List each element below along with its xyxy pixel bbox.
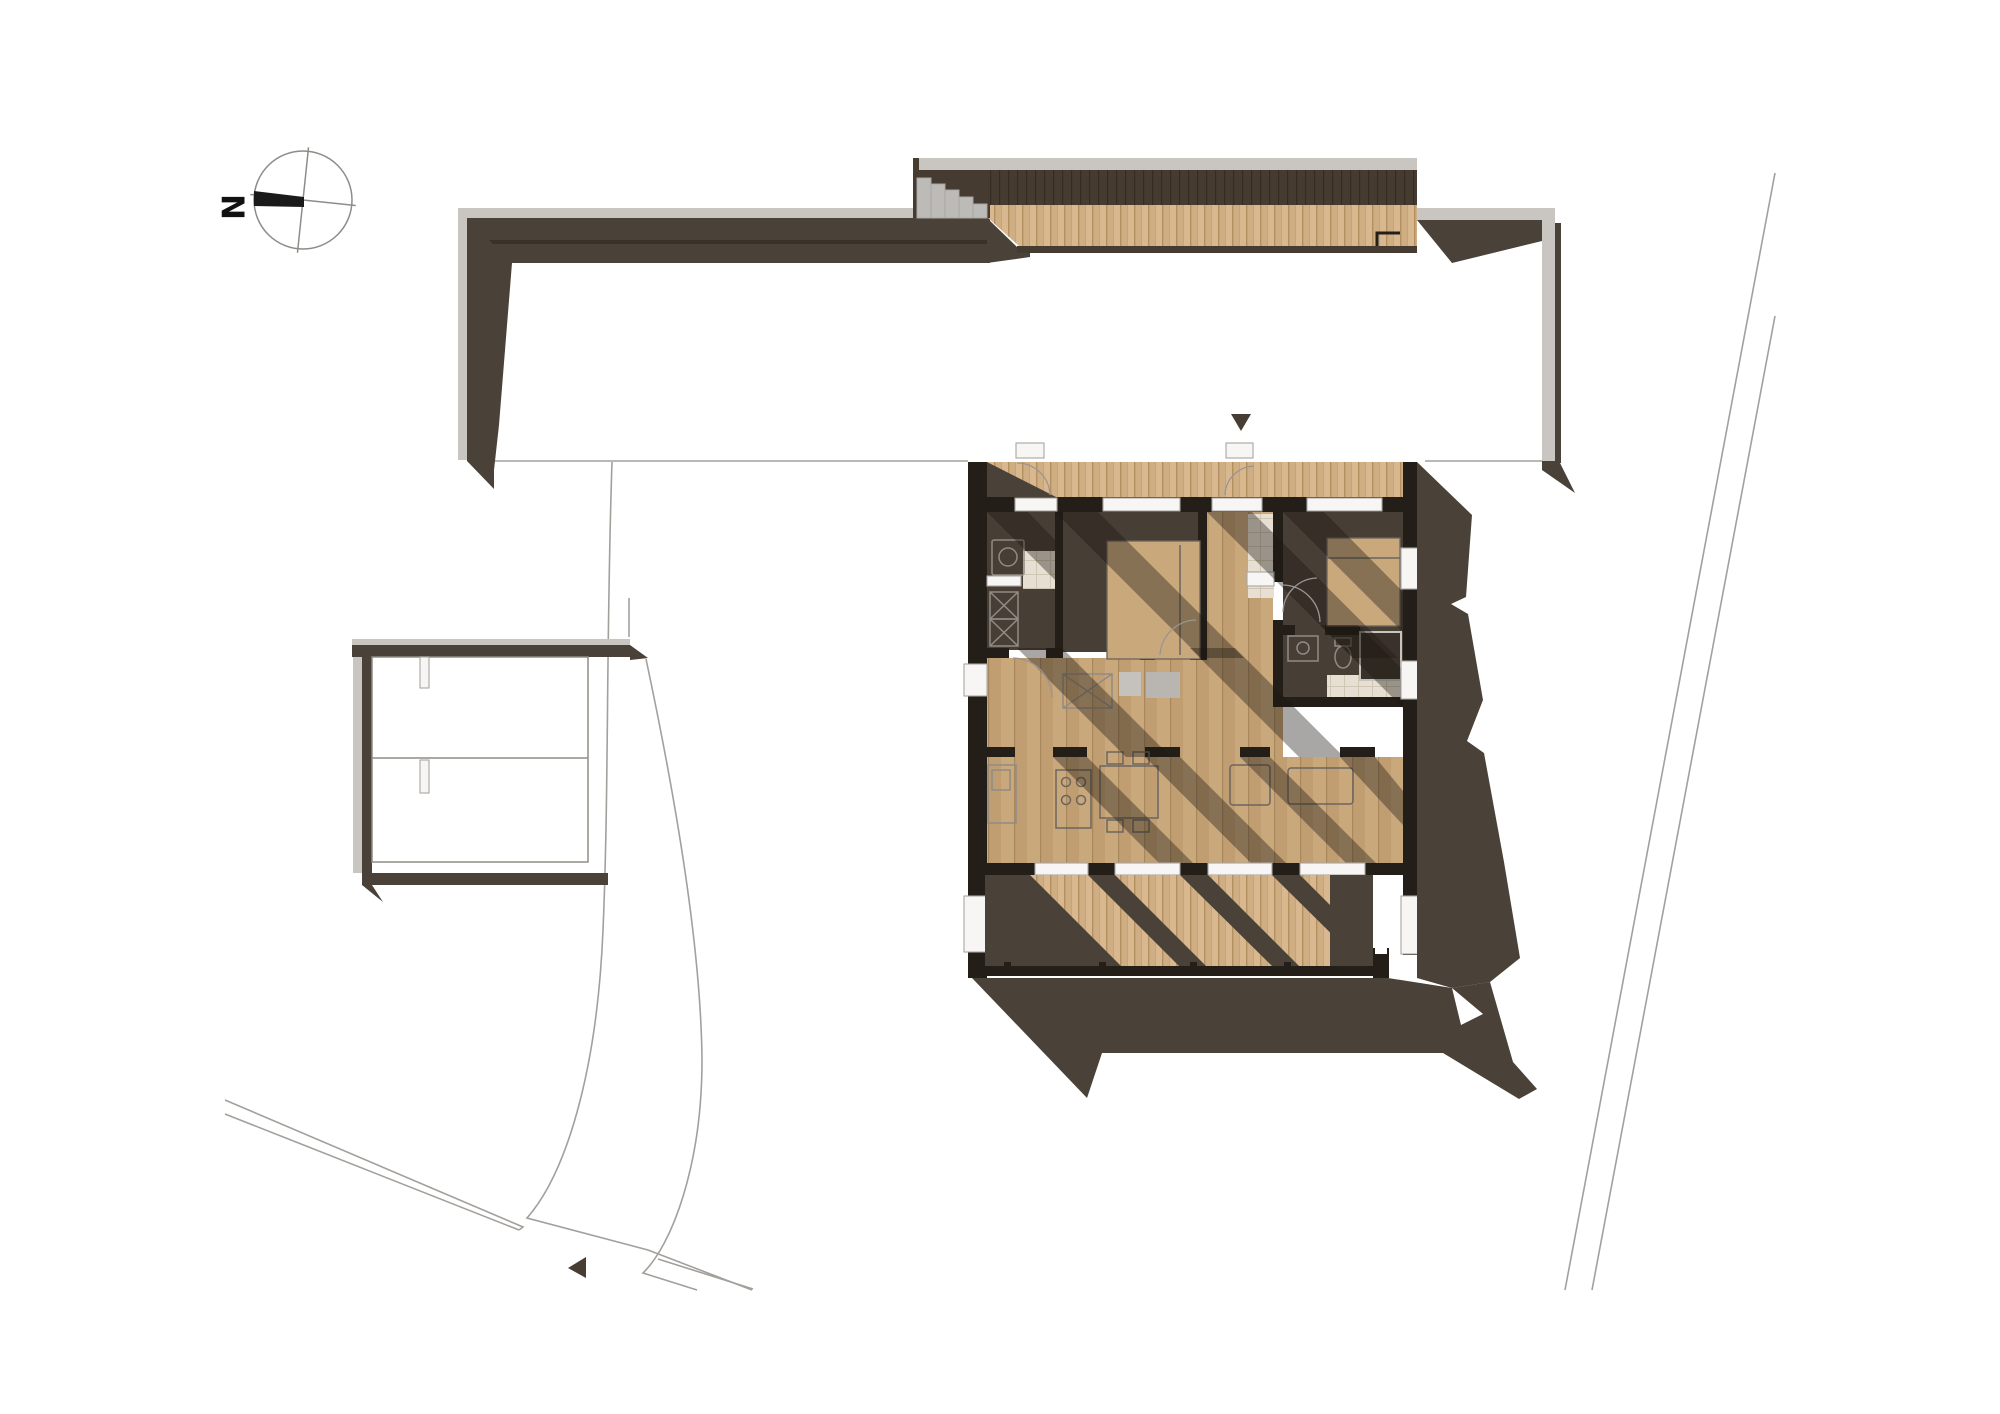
stair-tread <box>917 178 931 218</box>
terrace-under-strip <box>1017 246 1417 253</box>
hall-cabinet <box>1119 672 1141 696</box>
window-bottom <box>1035 863 1088 875</box>
stair-tread <box>973 204 987 218</box>
site-plan-drawing: N <box>0 0 2000 1414</box>
house <box>964 443 1537 1099</box>
terrace-concrete-band <box>913 158 1417 170</box>
wall-quad-right <box>1417 220 1542 263</box>
north-arrow-icon <box>254 191 304 207</box>
wall-right <box>1403 462 1417 955</box>
annex-post-marker <box>420 657 429 688</box>
entry-arrow-icon <box>1231 414 1251 431</box>
wall-bath-top-a <box>1283 625 1295 635</box>
shadow-below-house <box>972 978 1537 1099</box>
north-label: N <box>217 194 253 220</box>
roof-opening-marker <box>1016 443 1044 458</box>
stair-tread <box>959 197 973 218</box>
annex-concrete-left <box>353 645 362 873</box>
wall-edge-strip <box>1555 223 1561 463</box>
hall-cabinet <box>1146 672 1180 698</box>
window-top <box>1307 498 1382 511</box>
wall-left-wedge <box>467 218 512 489</box>
stair-tread <box>945 190 959 218</box>
boundary-line-a <box>1565 173 1775 1290</box>
path-edge-right <box>643 659 702 1290</box>
deck-post <box>1099 962 1106 971</box>
stair-tread <box>931 184 945 218</box>
wall-living-stub <box>1053 747 1087 757</box>
window-bottom <box>1208 863 1272 875</box>
deck-shadow-right <box>1330 875 1373 968</box>
window-right <box>1401 548 1419 589</box>
deck-fascia <box>985 966 1373 976</box>
path-edge-right-lower <box>658 1259 753 1289</box>
retaining-wall-right <box>1417 208 1575 493</box>
deck-pier-cap <box>1375 948 1387 954</box>
annex-concrete-top <box>352 639 630 645</box>
wall-band-joint <box>467 240 987 244</box>
window-left <box>964 896 987 952</box>
window-bottom <box>1300 863 1365 875</box>
wall-living-stub <box>1340 747 1375 757</box>
parking-stalls-outline <box>372 657 588 862</box>
carport-annex <box>352 639 648 902</box>
concrete-band-left <box>458 210 467 460</box>
bottom-deck <box>985 875 1373 976</box>
terrace-dark-slat-band <box>918 170 1417 205</box>
utility-shelf <box>987 576 1021 586</box>
annex-wall-bottom <box>362 873 608 885</box>
annex-wall-top <box>352 645 630 657</box>
wall-bottom-spike <box>1542 461 1575 493</box>
retaining-wall-upper <box>458 208 1030 489</box>
wall-bath-bottom <box>1283 697 1403 707</box>
window-right <box>1401 661 1419 699</box>
window-top <box>1103 498 1180 511</box>
site-plan-page: N <box>0 0 2000 1414</box>
wall-living-stub <box>1240 747 1270 757</box>
window-bottom <box>1115 863 1180 875</box>
road-edge-b <box>225 1114 519 1230</box>
road-edge-a <box>225 1100 523 1230</box>
annex-wall-left <box>362 645 372 877</box>
window-left <box>964 664 987 696</box>
window-top <box>1015 498 1057 511</box>
concrete-band-right-top <box>1417 208 1543 220</box>
stairs <box>913 170 990 218</box>
window-top <box>1212 498 1262 511</box>
deck-post <box>1004 962 1011 971</box>
shadow-right-wall <box>1417 462 1520 988</box>
annex-wall-top-wedge <box>630 645 648 660</box>
annex-post-marker <box>420 760 429 793</box>
roof-opening-marker <box>1226 443 1253 458</box>
wall-utility-bottom-a <box>987 648 1009 658</box>
wall-living-stub <box>987 747 1015 757</box>
boundary-line-b <box>1592 316 1775 1290</box>
wall-utility-right <box>1055 512 1063 650</box>
north-compass: N <box>217 142 362 258</box>
terrace-wood-deck <box>988 205 1417 246</box>
deck-post <box>1284 962 1291 971</box>
annex-wall-bottom-wedge <box>362 885 383 902</box>
path-arrow-icon <box>568 1257 586 1278</box>
concrete-wall-vertical <box>1542 208 1555 462</box>
deck-post <box>1190 962 1197 971</box>
